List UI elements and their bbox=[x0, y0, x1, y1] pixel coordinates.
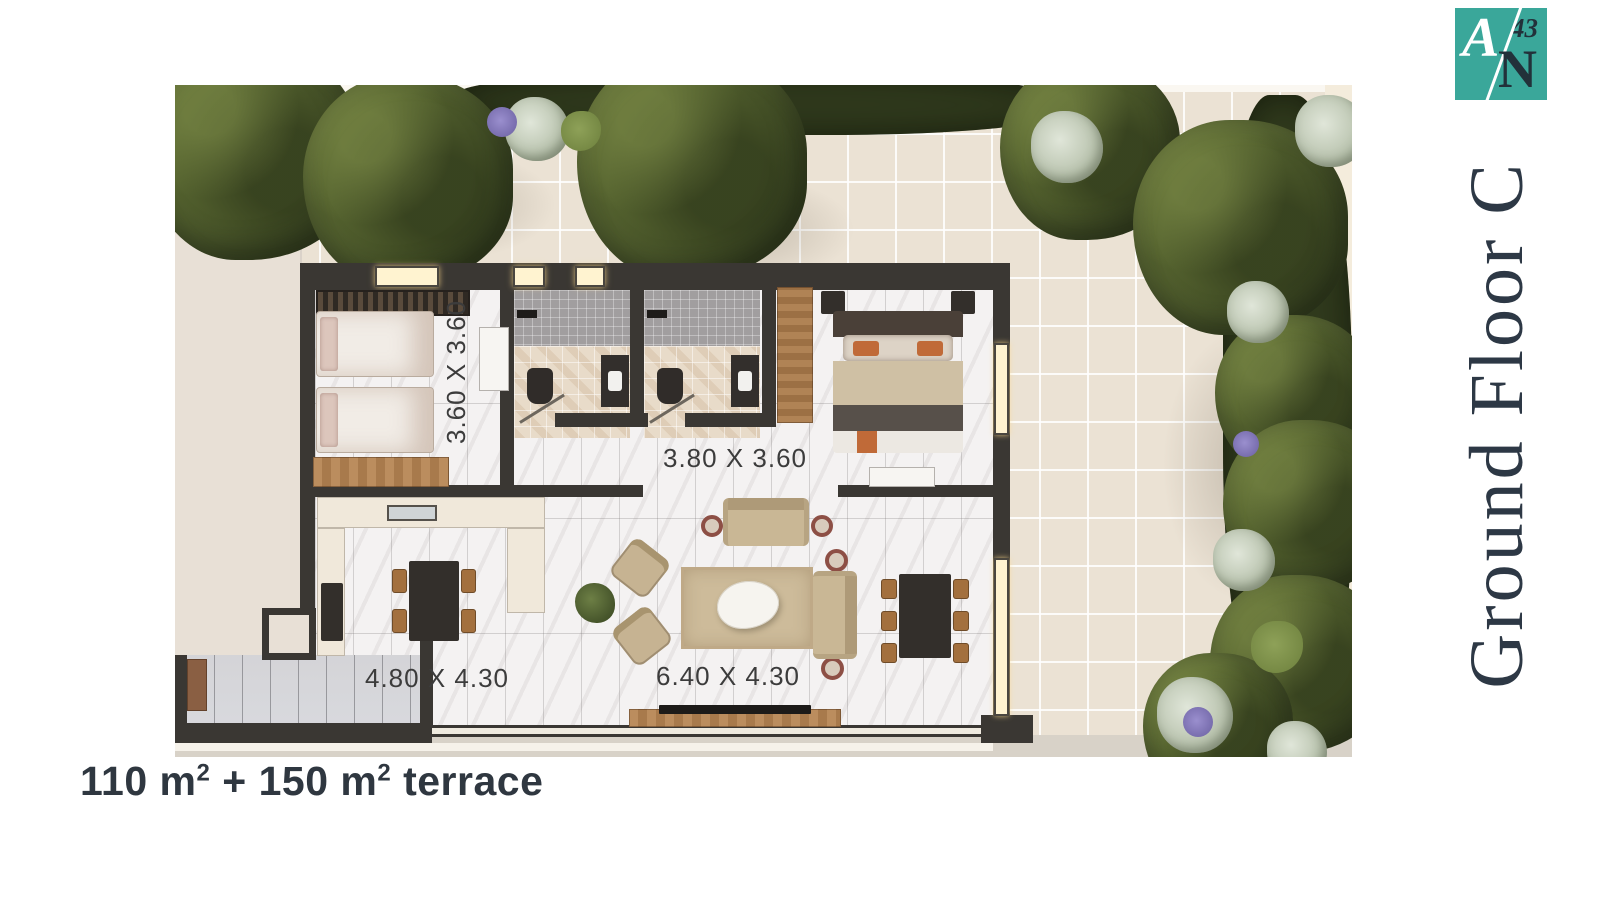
area-caption: 110 m2 + 150 m2 terrace bbox=[80, 758, 700, 818]
dresser bbox=[313, 457, 449, 487]
bedroom-bench bbox=[869, 467, 935, 487]
chair bbox=[953, 579, 969, 599]
shower-head bbox=[517, 310, 537, 318]
kitchen-table bbox=[409, 561, 459, 641]
sink-basin bbox=[738, 371, 752, 391]
chair bbox=[881, 579, 897, 599]
window bbox=[513, 266, 545, 287]
twin-bed bbox=[316, 387, 434, 453]
chair bbox=[881, 611, 897, 631]
side-table bbox=[825, 549, 848, 572]
shower-head bbox=[647, 310, 667, 318]
foot-stripe bbox=[857, 431, 877, 453]
side-table bbox=[821, 657, 844, 680]
room-label-hall: 3.80 X 3.60 bbox=[655, 443, 815, 473]
room-label-bedroom: 3.60 X 3.60 bbox=[427, 297, 485, 447]
double-bed bbox=[833, 311, 963, 453]
flower-icon bbox=[1183, 707, 1213, 737]
flower-icon bbox=[1233, 431, 1259, 457]
logo-letter-a: A bbox=[1462, 10, 1499, 66]
area-caption-sup: 2 bbox=[197, 759, 211, 786]
wardrobe bbox=[777, 287, 813, 423]
wall bbox=[630, 263, 644, 427]
dining-table bbox=[899, 574, 951, 658]
tree-icon bbox=[577, 85, 807, 280]
area-caption-part: + 150 m bbox=[210, 758, 377, 804]
window bbox=[375, 266, 439, 287]
wall bbox=[514, 485, 643, 497]
chair bbox=[953, 643, 969, 663]
kitchen-appliance bbox=[321, 583, 343, 641]
flower-icon bbox=[487, 107, 517, 137]
side-table bbox=[811, 515, 833, 537]
title-column: Ground Floor C bbox=[1405, 85, 1590, 765]
tree-icon bbox=[303, 85, 513, 285]
entry-cabinet bbox=[187, 659, 207, 711]
tv-icon bbox=[659, 705, 811, 714]
kitchen-island bbox=[507, 528, 545, 613]
shower-area bbox=[644, 290, 760, 346]
pillow bbox=[320, 393, 338, 447]
room-label-text: 4.80 X 4.30 bbox=[365, 663, 509, 694]
blanket-band bbox=[833, 405, 963, 431]
toilet bbox=[527, 368, 553, 404]
headboard bbox=[833, 311, 963, 337]
wall-column bbox=[981, 715, 1033, 743]
vanity-sink bbox=[601, 355, 629, 407]
vanity-sink bbox=[731, 355, 759, 407]
shrub-icon bbox=[1295, 95, 1352, 167]
area-caption-part: 110 m bbox=[80, 758, 197, 804]
plant-icon bbox=[575, 583, 615, 623]
entry-niche bbox=[262, 608, 316, 660]
wall bbox=[555, 413, 648, 427]
shrub-icon bbox=[1213, 529, 1275, 591]
sofa bbox=[723, 498, 809, 546]
chair bbox=[461, 609, 476, 633]
area-caption-sup: 2 bbox=[377, 759, 391, 786]
shrub-icon bbox=[1227, 281, 1289, 343]
room-label-text: 3.80 X 3.60 bbox=[663, 443, 807, 474]
kitchen-sink bbox=[387, 505, 437, 521]
duvet bbox=[833, 361, 963, 405]
window bbox=[994, 343, 1009, 435]
wall bbox=[762, 263, 776, 427]
wall bbox=[685, 413, 776, 427]
floor-plan-sheet: 3.60 X 3.60 3.80 X 3.60 4.80 X 4.30 6.40… bbox=[0, 0, 1600, 900]
accent-pillow bbox=[917, 341, 943, 356]
floor-plan: 3.60 X 3.60 3.80 X 3.60 4.80 X 4.30 6.40… bbox=[175, 85, 1352, 757]
room-label-text: 3.60 X 3.60 bbox=[441, 300, 472, 444]
sink-basin bbox=[608, 371, 622, 391]
bed-foot bbox=[833, 431, 963, 453]
room-label-kitchen: 4.80 X 4.30 bbox=[357, 663, 517, 693]
shower-area bbox=[514, 290, 630, 346]
chair bbox=[392, 569, 407, 593]
sofa bbox=[813, 571, 857, 659]
shrub-icon bbox=[1031, 111, 1103, 183]
pillow bbox=[320, 317, 338, 371]
chair bbox=[461, 569, 476, 593]
side-table bbox=[701, 515, 723, 537]
chair bbox=[392, 609, 407, 633]
window bbox=[994, 558, 1009, 716]
room-label-text: 6.40 X 4.30 bbox=[656, 661, 800, 692]
twin-bed bbox=[316, 311, 434, 377]
page-title: Ground Floor C bbox=[1454, 161, 1541, 689]
terrace-sill bbox=[175, 743, 993, 751]
window bbox=[575, 266, 605, 287]
area-caption-part: terrace bbox=[391, 758, 543, 804]
accent-pillow bbox=[853, 341, 879, 356]
toilet bbox=[657, 368, 683, 404]
room-label-living: 6.40 X 4.30 bbox=[648, 661, 808, 691]
wall bbox=[300, 263, 315, 612]
wall bbox=[175, 723, 432, 743]
chair bbox=[953, 611, 969, 631]
chair bbox=[881, 643, 897, 663]
